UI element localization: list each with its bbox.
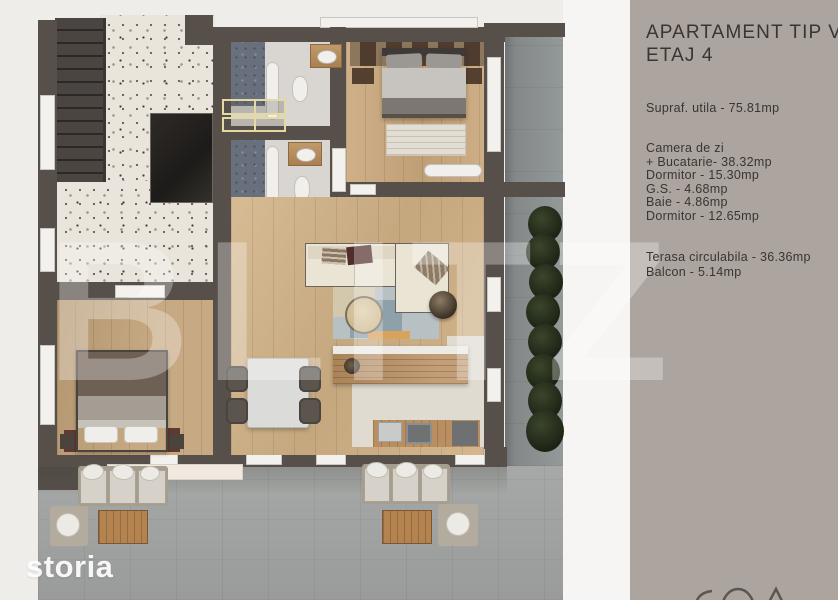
closet-symbol [222, 99, 286, 115]
bush-icon [526, 410, 564, 452]
partial-developer-logo [688, 581, 800, 600]
bedroom2-door [115, 285, 165, 298]
pillow [426, 53, 462, 68]
outdoor-area-line: Balcon - 5.14mp [646, 265, 811, 280]
nightstand [60, 434, 74, 449]
kitchen-island [333, 346, 468, 384]
outdoor-sofa [362, 464, 450, 504]
top-wall [213, 27, 505, 42]
room-area-line: Dormitor - 15.30mp [646, 169, 772, 183]
sphere-decor [429, 291, 457, 319]
bedroom1-door-leaf [332, 148, 346, 192]
kitchen-counter [373, 420, 480, 447]
bedroom1-rug [386, 124, 466, 156]
closet-symbol [222, 117, 286, 132]
window [40, 345, 55, 425]
pillow [386, 53, 423, 69]
appliance [452, 421, 478, 446]
room-area-line: Baie - 4.86mp [646, 196, 772, 210]
sink-basin [296, 148, 316, 162]
floor-plan-listing-image: BLITZ APARTAMENT TIP V ETAJ 4 Supraf. ut… [0, 0, 838, 600]
outdoor-armchair [438, 504, 478, 546]
balcony-door [487, 277, 501, 312]
room-area-line: Camera de zi [646, 142, 772, 156]
hedge-row [526, 206, 564, 452]
room-area-line: Dormitor - 12.65mp [646, 210, 772, 224]
sidebar: APARTAMENT TIP V ETAJ 4 Supraf. utila - … [646, 0, 828, 600]
island-counter-edge [333, 346, 468, 354]
outdoor-sofa [78, 466, 168, 506]
bathroom1-toilet [292, 76, 308, 102]
window [487, 368, 501, 402]
window [487, 57, 501, 152]
background-strip [563, 0, 630, 600]
sink-basin [317, 50, 337, 64]
throw [78, 396, 166, 420]
dining-chair [226, 398, 248, 424]
dining-chair [226, 366, 248, 392]
island-sink [344, 358, 360, 374]
bedroom2-bed [76, 350, 168, 452]
room-area-line: G.S. - 4.68mp [646, 183, 772, 197]
bedroom1-bench [424, 164, 482, 177]
closet-divider [254, 101, 256, 113]
storia-logo: storia [26, 549, 113, 585]
dining-chair [299, 366, 321, 392]
round-pouf [345, 296, 383, 334]
outdoor-table [382, 510, 432, 544]
bedroom1-bed [382, 48, 466, 118]
living-right-wall [484, 197, 504, 455]
outdoor-armchair [50, 506, 88, 546]
bedroom1-door [350, 184, 376, 195]
pillow [84, 426, 118, 443]
kitchen-sink [378, 422, 402, 442]
armchair-cushion [446, 512, 470, 536]
closet-divider [254, 119, 256, 130]
stove [406, 423, 432, 444]
armchair-cushion [56, 513, 80, 537]
staircase [55, 18, 103, 182]
nightstand [352, 68, 374, 84]
sofa-pillow-striped [321, 247, 346, 265]
dining-chair [299, 398, 321, 424]
bathroom1-shower [231, 42, 265, 106]
room-area-line: + Bucatarie- 38.32mp [646, 156, 772, 170]
top-left-wall-block [185, 15, 213, 45]
floor-subtitle: ETAJ 4 [646, 45, 714, 67]
bedroom1-bottom-wall [346, 182, 565, 197]
outdoor-area-list: Terasa circulabila - 36.36mp Balcon - 5.… [646, 250, 811, 279]
total-area-line: Supraf. utila - 75.81mp [646, 101, 779, 115]
stair-railing [103, 18, 106, 182]
window [40, 228, 55, 272]
apartment-title: APARTAMENT TIP V [646, 22, 838, 44]
bed-frame-foot [382, 114, 466, 118]
elevator-shaft [150, 113, 213, 203]
nightstand [170, 434, 184, 449]
bathroom2-door-leaf [266, 146, 279, 204]
blanket [78, 352, 166, 396]
window [40, 95, 55, 170]
bathroom1-vanity [310, 44, 342, 68]
bathroom2-vanity [288, 142, 322, 166]
outdoor-area-line: Terasa circulabila - 36.36mp [646, 250, 811, 265]
bed-runner [382, 98, 466, 114]
rug-patch [368, 331, 410, 339]
sofa-pillow-maroon [346, 245, 373, 266]
balcony-shadow [505, 23, 515, 466]
outdoor-table [98, 510, 148, 544]
room-area-list: Camera de zi + Bucatarie- 38.32mp Dormit… [646, 142, 772, 224]
pillow [124, 426, 158, 443]
